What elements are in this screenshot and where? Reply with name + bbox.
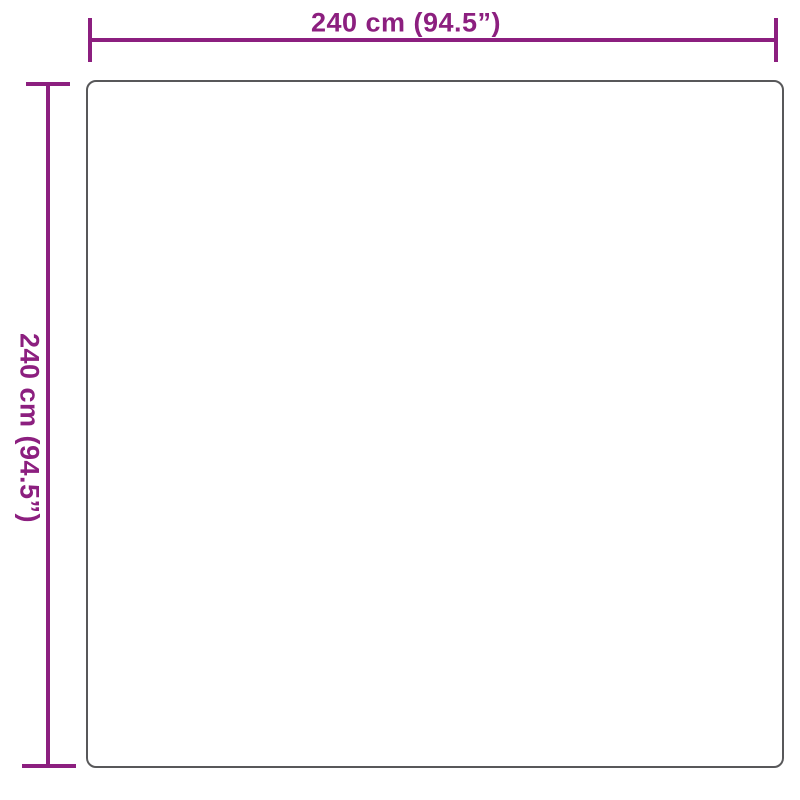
height-dimension-line <box>46 82 50 768</box>
height-dimension-top-tick <box>26 82 70 86</box>
width-dimension-right-tick <box>774 18 778 62</box>
width-dimension-label: 240 cm (94.5”) <box>311 8 501 39</box>
width-dimension-line <box>88 38 778 42</box>
product-outline-square <box>86 80 784 768</box>
height-dimension-label: 240 cm (94.5”) <box>14 333 45 523</box>
width-dimension-left-tick <box>88 18 92 62</box>
height-dimension-bottom-tick <box>22 764 76 768</box>
dimension-diagram: 240 cm (94.5”) 240 cm (94.5”) <box>0 0 800 800</box>
